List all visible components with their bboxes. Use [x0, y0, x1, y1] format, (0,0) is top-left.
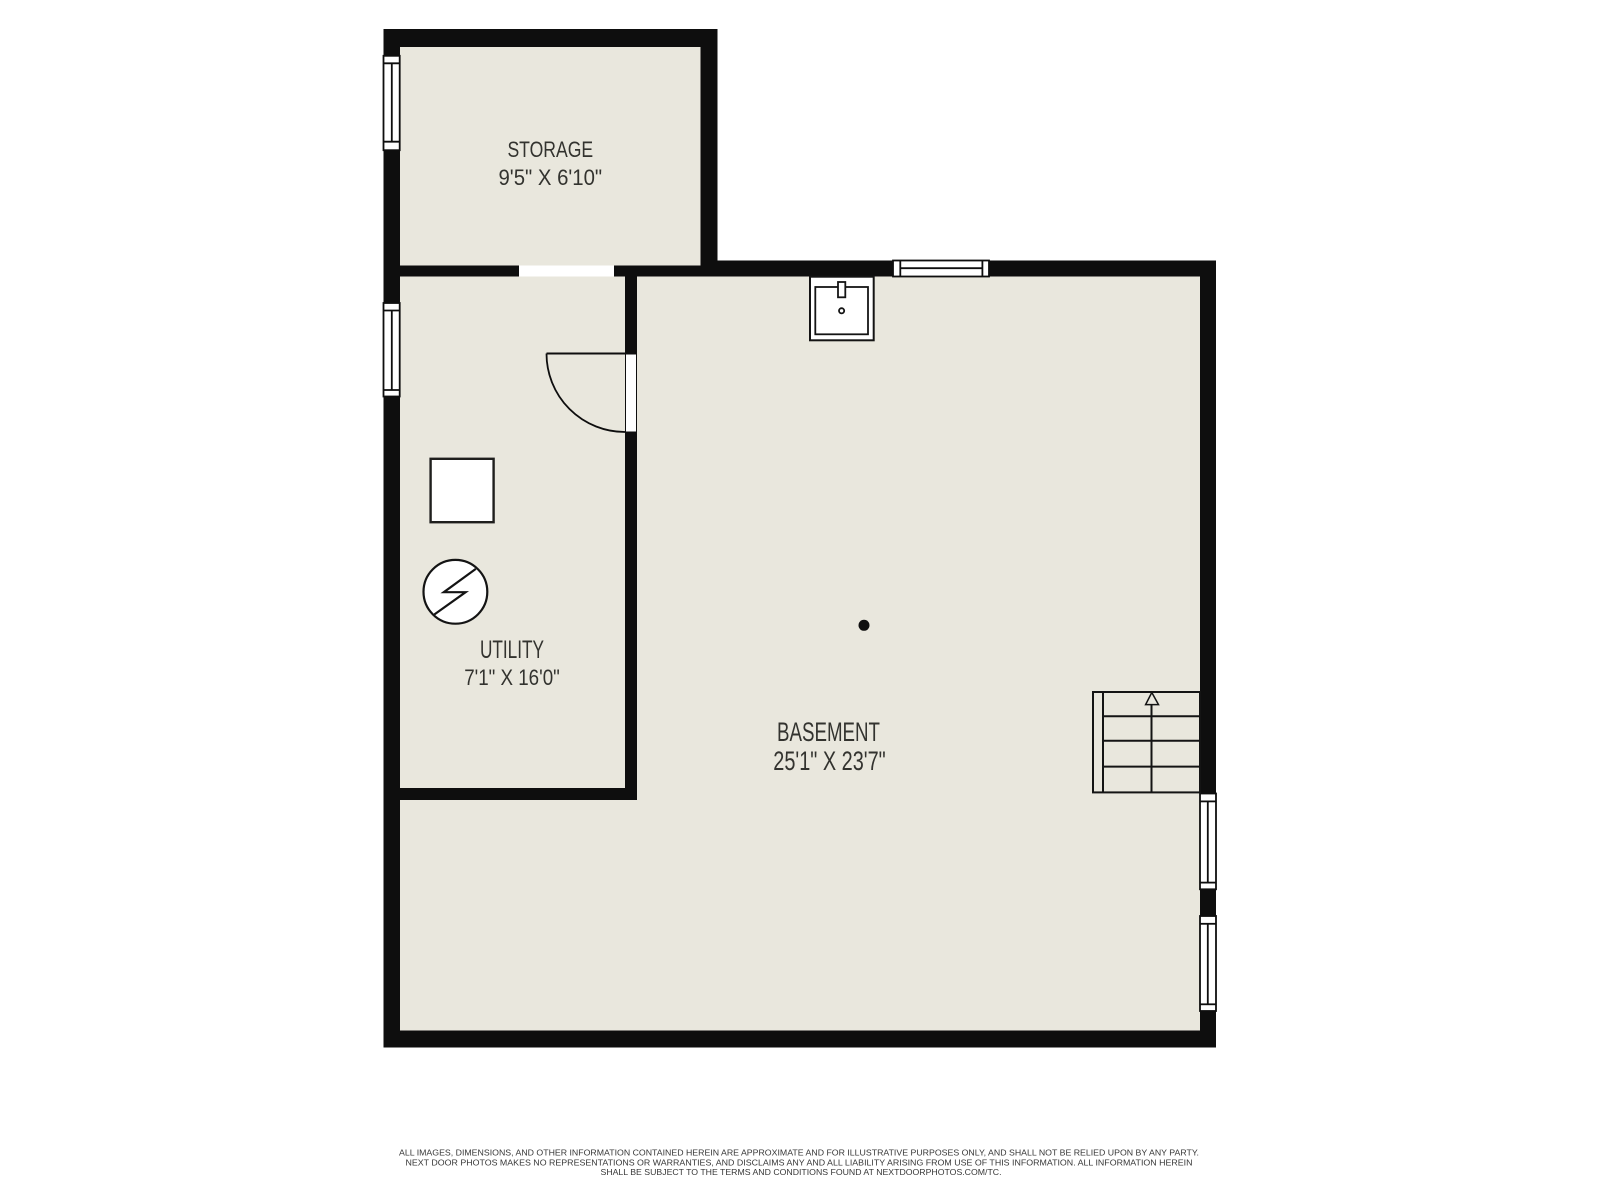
- svg-text:7'1" X 16'0": 7'1" X 16'0": [464, 665, 560, 690]
- svg-text:UTILITY: UTILITY: [480, 636, 544, 664]
- svg-text:BASEMENT: BASEMENT: [777, 717, 880, 747]
- svg-text:25'1" X 23'7": 25'1" X 23'7": [773, 746, 886, 776]
- svg-text:NEXT DOOR PHOTOS MAKES NO REPR: NEXT DOOR PHOTOS MAKES NO REPRESENTATION…: [406, 1157, 1193, 1167]
- svg-text:ALL IMAGES, DIMENSIONS, AND OT: ALL IMAGES, DIMENSIONS, AND OTHER INFORM…: [399, 1148, 1199, 1158]
- svg-text:STORAGE: STORAGE: [507, 137, 593, 162]
- svg-text:9'5" X 6'10": 9'5" X 6'10": [499, 165, 603, 190]
- svg-text:SHALL BE SUBJECT TO THE TERMS: SHALL BE SUBJECT TO THE TERMS AND CONDIT…: [601, 1167, 1002, 1177]
